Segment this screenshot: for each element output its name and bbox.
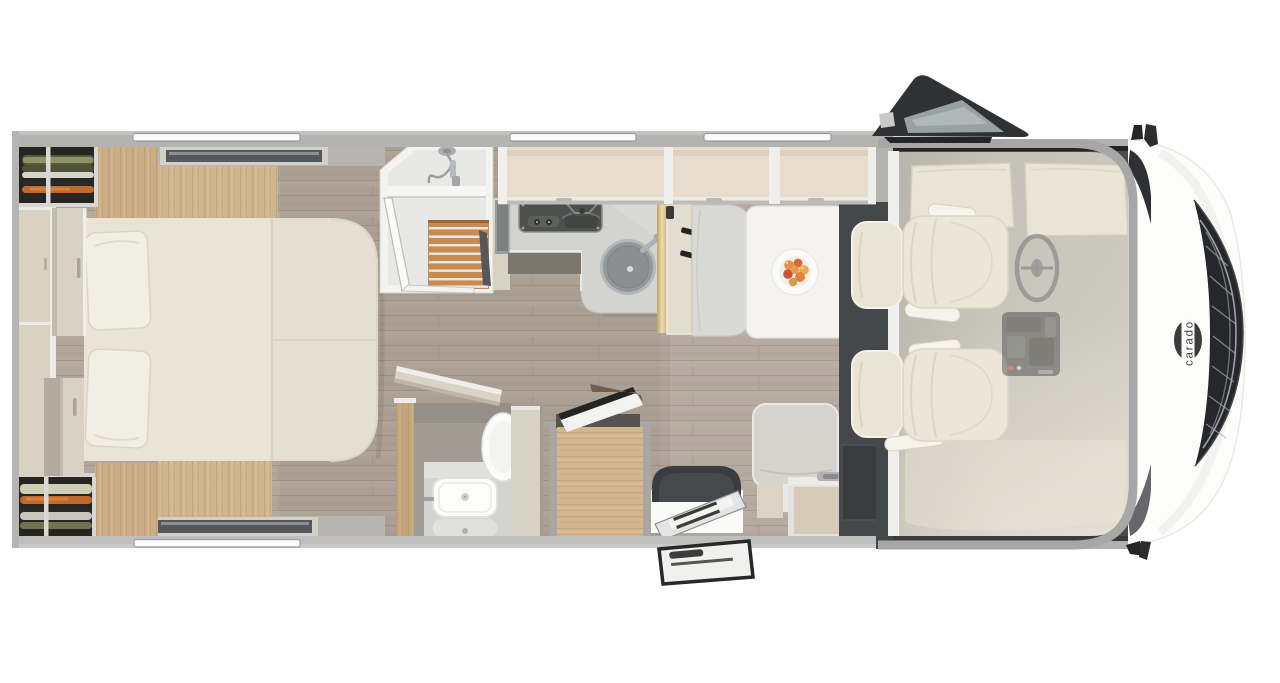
svg-text:carado: carado xyxy=(1184,320,1196,366)
